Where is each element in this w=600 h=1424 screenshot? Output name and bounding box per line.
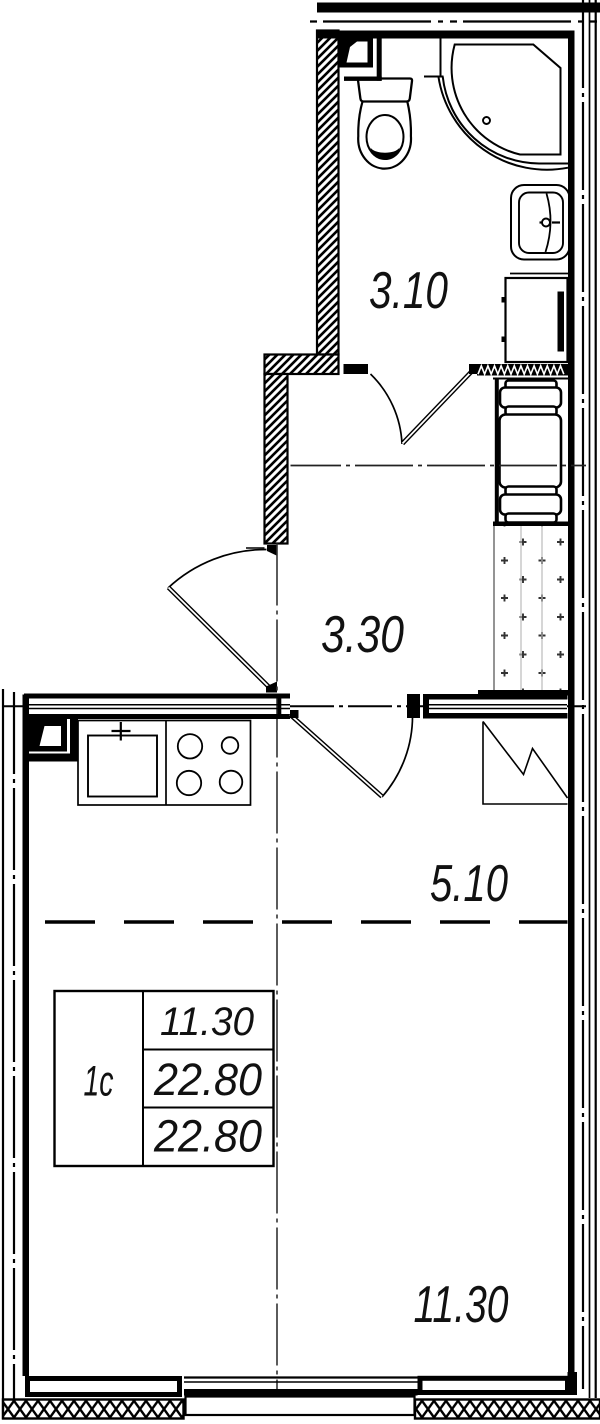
- svg-text:3.30: 3.30: [321, 606, 404, 664]
- svg-text:3.10: 3.10: [369, 262, 448, 320]
- svg-text:11.30: 11.30: [160, 1000, 254, 1044]
- svg-text:22.80: 22.80: [153, 1111, 262, 1162]
- svg-text:1с: 1с: [84, 1058, 114, 1106]
- svg-text:5.10: 5.10: [430, 855, 508, 913]
- svg-text:22.80: 22.80: [153, 1054, 262, 1105]
- svg-text:11.30: 11.30: [414, 1276, 509, 1334]
